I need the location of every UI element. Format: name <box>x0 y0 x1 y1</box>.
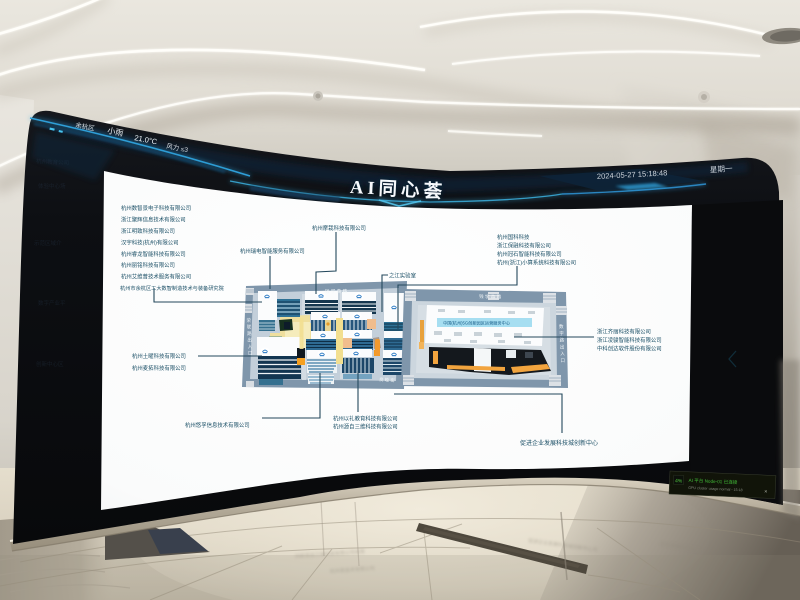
svg-text:中科创达软件股份有限公司: 中科创达软件股份有限公司 <box>597 345 662 353</box>
svg-text:路: 路 <box>560 337 565 344</box>
svg-text:之江实验室: 之江实验室 <box>389 272 417 280</box>
svg-text:杭州(浙江)小算系统科技有限公司: 杭州(浙江)小算系统科技有限公司 <box>497 259 576 267</box>
svg-text:入: 入 <box>248 344 253 349</box>
svg-text:杭州悠孚信息技术有限公司: 杭州悠孚信息技术有限公司 <box>185 421 250 429</box>
svg-text:联: 联 <box>247 324 252 331</box>
svg-text:浙江保融科技有限公司: 浙江保融科技有限公司 <box>497 242 551 250</box>
svg-text:汉宇科技(杭州)有限公司: 汉宇科技(杭州)有限公司 <box>121 239 179 247</box>
svg-text:×: × <box>764 489 767 495</box>
svg-text:杭州丽铭科技有限公司: 杭州丽铭科技有限公司 <box>121 261 175 269</box>
svg-text:促进企业发展科技城创新中心: 促进企业发展科技城创新中心 <box>520 439 598 447</box>
svg-text:浙江聚辉信息技术有限公司: 浙江聚辉信息技术有限公司 <box>121 216 186 224</box>
svg-text:4%: 4% <box>675 478 683 484</box>
svg-text:杭州国科科技: 杭州国科科技 <box>497 233 530 241</box>
svg-text:杭州以礼教育科技有限公司: 杭州以礼教育科技有限公司 <box>333 415 398 423</box>
svg-text:浙江凌骏智能科技有限公司: 浙江凌骏智能科技有限公司 <box>597 336 662 344</box>
svg-text:杭州土曜科技有限公司: 杭州土曜科技有限公司 <box>132 352 186 360</box>
svg-text:杭州数智景电子科技有限公司: 杭州数智景电子科技有限公司 <box>121 204 191 212</box>
svg-text:中国(杭州)5G创新园区运营服务中心: 中国(杭州)5G创新园区运营服务中心 <box>443 320 511 327</box>
svg-text:杭州市余杭区工大数智制造技术与装备研究院: 杭州市余杭区工大数智制造技术与装备研究院 <box>120 284 225 292</box>
svg-text:示范区域介: 示范区域介 <box>34 239 62 247</box>
svg-text:杭州摩栽科技有限公司: 杭州摩栽科技有限公司 <box>312 224 366 232</box>
svg-text:浙江明致科技有限公司: 浙江明致科技有限公司 <box>121 227 175 235</box>
svg-text:出: 出 <box>560 343 565 350</box>
svg-text:字: 字 <box>559 330 564 336</box>
svg-text:路: 路 <box>247 330 252 337</box>
svg-text:杭州艾维普技术服务有限公司: 杭州艾维普技术服务有限公司 <box>121 273 191 281</box>
svg-text:数: 数 <box>559 323 564 330</box>
svg-text:入: 入 <box>560 351 565 356</box>
svg-text:杭州冠石智能科技有限公司: 杭州冠石智能科技有限公司 <box>497 250 562 258</box>
svg-text:浙江齐丽科技有限公司: 浙江齐丽科技有限公司 <box>597 328 651 336</box>
svg-text:体验中心场: 体验中心场 <box>38 182 66 190</box>
svg-text:杭州睿龙智能科技有限公司: 杭州睿龙智能科技有限公司 <box>121 250 186 258</box>
svg-text:杭州麦拓科技有限公司: 杭州麦拓科技有限公司 <box>132 364 186 372</box>
svg-text:数字产业平: 数字产业平 <box>38 299 66 307</box>
svg-text:杭州源自三维科技有限公司: 杭州源自三维科技有限公司 <box>333 423 398 431</box>
svg-text:出: 出 <box>247 337 252 344</box>
svg-text:创新中心区: 创新中心区 <box>36 360 64 368</box>
svg-text:杭州瑞电智能服务有限公司: 杭州瑞电智能服务有限公司 <box>240 247 305 255</box>
svg-text:荣: 荣 <box>247 317 252 324</box>
svg-text:星期一: 星期一 <box>710 164 734 175</box>
